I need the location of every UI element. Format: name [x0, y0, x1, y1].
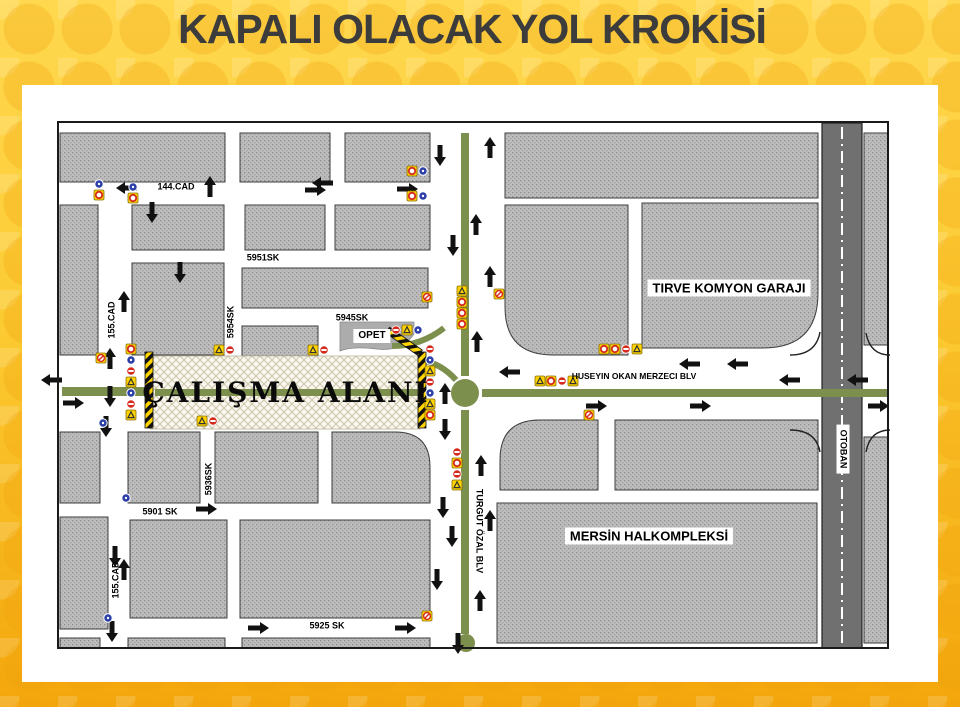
city-block	[505, 205, 628, 355]
traffic-sign-ry	[457, 319, 467, 329]
traffic-direction-arrow	[484, 266, 496, 287]
traffic-direction-arrow	[471, 331, 483, 352]
traffic-direction-arrow	[439, 419, 451, 440]
city-block	[215, 432, 318, 503]
traffic-sign-b	[95, 180, 103, 188]
city-block	[500, 420, 598, 490]
city-block	[642, 203, 818, 348]
traffic-sign-ne	[453, 448, 461, 456]
city-block	[128, 432, 200, 503]
traffic-sign-yw	[197, 416, 207, 426]
median-strip	[461, 410, 469, 634]
traffic-sign-ry	[128, 193, 138, 203]
median-strip	[461, 133, 469, 376]
traffic-sign-cluster	[422, 611, 432, 621]
traffic-sign-cluster	[392, 325, 422, 335]
traffic-sign-yw	[126, 410, 136, 420]
traffic-sign-yw	[425, 366, 435, 376]
traffic-sign-cluster	[104, 614, 112, 622]
traffic-sign-cluster	[99, 419, 107, 427]
traffic-sign-yw	[425, 399, 435, 409]
traffic-direction-arrow	[118, 559, 130, 580]
traffic-sign-yw	[457, 286, 467, 296]
traffic-sign-ne	[453, 470, 461, 478]
traffic-sign-cluster	[452, 448, 462, 490]
city-block	[132, 205, 224, 250]
traffic-sign-cluster	[584, 410, 594, 420]
traffic-sign-ry	[452, 458, 462, 468]
traffic-direction-arrow	[439, 383, 451, 404]
city-block	[60, 133, 225, 182]
traffic-sign-ne	[426, 345, 434, 353]
traffic-direction-arrow	[434, 145, 446, 166]
city-block	[505, 133, 818, 198]
city-block	[128, 638, 225, 648]
city-block	[242, 268, 428, 308]
traffic-direction-arrow	[109, 546, 121, 567]
road-closure-map	[22, 85, 938, 682]
city-block	[615, 420, 818, 490]
traffic-sign-cluster	[214, 345, 234, 355]
traffic-sign-cluster	[96, 353, 106, 363]
traffic-sign-ry	[546, 376, 556, 386]
traffic-sign-cluster	[494, 289, 504, 299]
traffic-sign-ne	[426, 378, 434, 386]
traffic-sign-yw	[126, 377, 136, 387]
traffic-sign-yw	[535, 376, 545, 386]
traffic-direction-arrow	[868, 400, 889, 412]
traffic-sign-ry	[599, 344, 609, 354]
traffic-sign-ry	[425, 410, 435, 420]
traffic-direction-arrow	[679, 358, 700, 370]
traffic-sign-cluster	[407, 191, 427, 201]
traffic-sign-yw	[402, 325, 412, 335]
city-block	[242, 638, 430, 648]
traffic-sign-b	[414, 326, 422, 334]
city-block	[332, 432, 430, 503]
traffic-sign-b	[426, 389, 434, 397]
traffic-sign-yw	[452, 480, 462, 490]
traffic-direction-arrow	[431, 569, 443, 590]
city-block	[240, 133, 330, 182]
traffic-direction-arrow	[118, 291, 130, 312]
median-strip	[155, 389, 418, 396]
traffic-sign-slash	[584, 410, 594, 420]
traffic-sign-cluster	[407, 166, 427, 176]
city-block	[60, 205, 98, 355]
city-block	[60, 638, 100, 648]
traffic-sign-ne	[127, 367, 135, 375]
traffic-sign-cluster	[535, 376, 578, 386]
traffic-sign-yw	[308, 345, 318, 355]
traffic-sign-cluster	[197, 416, 217, 426]
city-block	[60, 432, 100, 503]
traffic-sign-slash	[422, 292, 432, 302]
traffic-sign-slash	[96, 353, 106, 363]
city-block	[240, 520, 430, 618]
traffic-sign-b	[127, 356, 135, 364]
traffic-sign-b	[127, 389, 135, 397]
traffic-direction-arrow	[499, 366, 520, 378]
traffic-sign-b	[426, 356, 434, 364]
traffic-direction-arrow	[474, 590, 486, 611]
traffic-sign-ry	[94, 190, 104, 200]
traffic-direction-arrow	[475, 455, 487, 476]
work-zone-barrier	[145, 352, 153, 428]
median-strip	[482, 389, 888, 397]
traffic-sign-b	[122, 494, 130, 502]
traffic-sign-slash	[422, 611, 432, 621]
traffic-sign-b	[99, 419, 107, 427]
page-title: KAPALI OLACAK YOL KROKİSİ	[0, 6, 944, 53]
traffic-direction-arrow	[437, 497, 449, 518]
traffic-sign-cluster	[128, 183, 138, 203]
traffic-sign-ne	[127, 400, 135, 408]
traffic-sign-cluster	[422, 292, 432, 302]
traffic-sign-cluster	[122, 494, 130, 502]
traffic-sign-yw	[214, 345, 224, 355]
traffic-sign-ne	[622, 345, 630, 353]
traffic-direction-arrow	[727, 358, 748, 370]
traffic-direction-arrow	[447, 235, 459, 256]
traffic-sign-ne	[320, 346, 328, 354]
traffic-direction-arrow	[196, 503, 217, 515]
traffic-direction-arrow	[305, 184, 326, 196]
traffic-sign-ne	[226, 346, 234, 354]
traffic-sign-yw	[632, 344, 642, 354]
traffic-direction-arrow	[446, 526, 458, 547]
traffic-sign-b	[419, 167, 427, 175]
traffic-sign-b	[129, 183, 137, 191]
city-block	[335, 205, 430, 250]
traffic-sign-ne	[558, 377, 566, 385]
traffic-sign-ry	[457, 297, 467, 307]
city-block	[130, 520, 227, 618]
traffic-sign-ry	[457, 308, 467, 318]
traffic-direction-arrow	[63, 397, 84, 409]
traffic-direction-arrow	[395, 622, 416, 634]
traffic-direction-arrow	[470, 214, 482, 235]
city-block	[60, 517, 108, 629]
traffic-sign-ry	[407, 166, 417, 176]
traffic-sign-slash	[494, 289, 504, 299]
traffic-sign-ry	[126, 344, 136, 354]
traffic-direction-arrow	[484, 137, 496, 158]
traffic-direction-arrow	[484, 510, 496, 531]
traffic-direction-arrow	[248, 622, 269, 634]
city-block	[245, 205, 325, 250]
city-block	[497, 503, 817, 643]
road-closure-map-panel: 144.CAD5951SK5945SK5954SK155.CAD155.CAD5…	[22, 85, 938, 682]
traffic-sign-ne	[392, 326, 400, 334]
traffic-direction-arrow	[690, 400, 711, 412]
traffic-sign-cluster	[308, 345, 328, 355]
traffic-sign-ne	[209, 417, 217, 425]
traffic-sign-cluster	[425, 345, 435, 420]
traffic-sign-yw	[568, 376, 578, 386]
city-block	[242, 326, 318, 356]
traffic-sign-b	[419, 192, 427, 200]
traffic-direction-arrow	[779, 374, 800, 386]
traffic-sign-ry	[610, 344, 620, 354]
city-block	[864, 437, 888, 643]
roundabout	[451, 379, 479, 407]
traffic-sign-ry	[407, 191, 417, 201]
city-block	[864, 133, 888, 345]
traffic-sign-b	[104, 614, 112, 622]
traffic-sign-cluster	[94, 180, 104, 200]
